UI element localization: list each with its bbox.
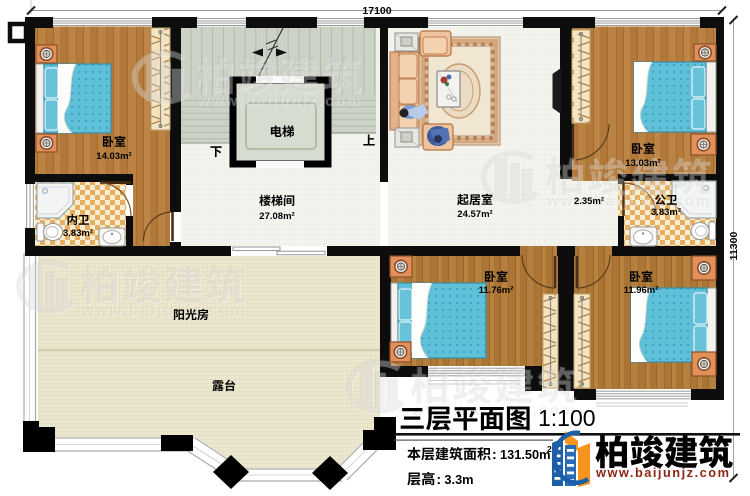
svg-text:11300: 11300 (728, 232, 740, 261)
svg-text:2.35m²: 2.35m² (574, 196, 604, 207)
svg-text:27.08m²: 27.08m² (259, 211, 294, 222)
svg-text:14.03m²: 14.03m² (96, 151, 131, 162)
svg-text:13.03m²: 13.03m² (625, 158, 660, 169)
svg-text:131.50m: 131.50m (500, 447, 551, 462)
svg-text:3.83m²: 3.83m² (63, 228, 93, 239)
svg-text::: : (436, 472, 441, 488)
svg-text:1:100: 1:100 (538, 405, 596, 431)
svg-text:11.76m²: 11.76m² (479, 285, 514, 296)
svg-text::: : (492, 447, 497, 463)
svg-text:11.96m²: 11.96m² (624, 285, 659, 296)
svg-text:24.57m²: 24.57m² (457, 209, 492, 220)
svg-text:2: 2 (547, 444, 552, 454)
svg-text:17100: 17100 (362, 5, 391, 17)
svg-text:3.83m²: 3.83m² (651, 207, 681, 218)
svg-text:3.3m: 3.3m (444, 472, 473, 487)
svg-text:www.baijunjz.com: www.baijunjz.com (595, 465, 730, 480)
